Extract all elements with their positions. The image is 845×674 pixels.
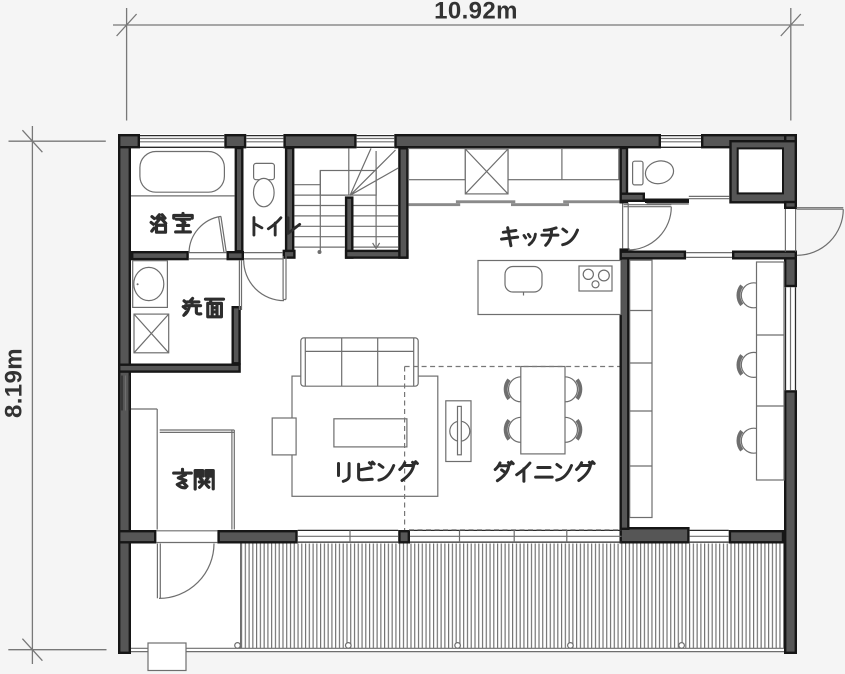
svg-text:10.92m: 10.92m: [434, 0, 518, 25]
svg-text:8.19m: 8.19m: [1, 348, 28, 418]
